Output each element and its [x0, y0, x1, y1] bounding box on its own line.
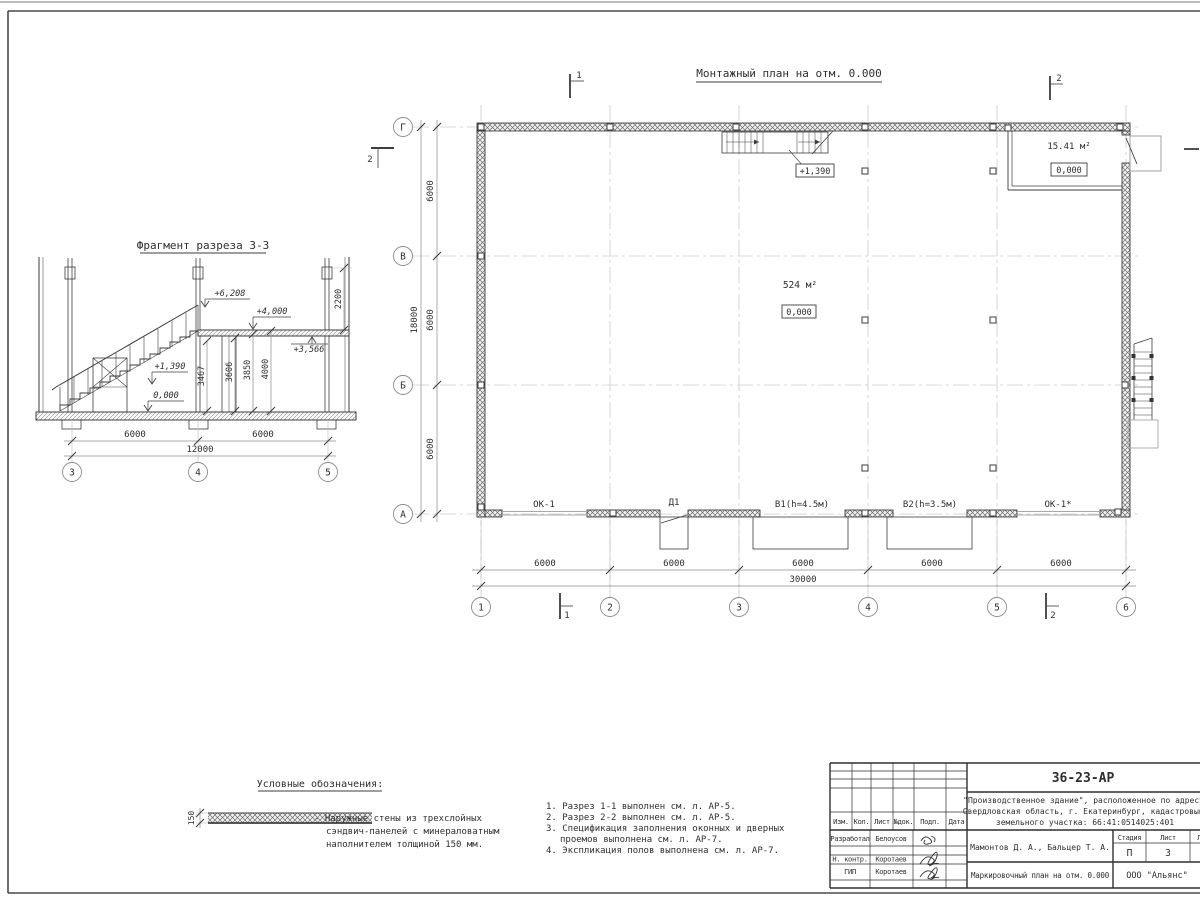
note-line-2: 2. Разрез 2-2 выполнен см. л. АР-5. [546, 813, 736, 823]
notes: 1. Разрез 1-1 выполнен см. л. АР-5. 2. Р… [546, 802, 785, 856]
note-line-4: 4. Экспликация полов выполнена см. л. АР… [546, 846, 779, 856]
axis-bubble-1: 1 [478, 603, 484, 614]
axis-bubble-5: 5 [994, 603, 1000, 614]
axis-bubble-3: 3 [736, 603, 742, 614]
plan: Монтажный план на отм. 0.000 [367, 67, 1199, 621]
col-izm: Изм. [833, 818, 849, 826]
dim-label: 6000 [534, 559, 556, 569]
dim-total-label: 18000 [410, 306, 420, 333]
elev-6208: +6,208 [215, 289, 246, 299]
axis-grid [413, 105, 1140, 597]
dim-label: 6000 [792, 559, 814, 569]
note-line-3: 3. Спецификация заполнения оконных и две… [546, 824, 785, 834]
section-mark-2-left: 2 [367, 155, 372, 165]
dim-total-label: 30000 [789, 575, 816, 585]
project-line-2: Свердловская область, г. Екатеринбург, к… [963, 806, 1200, 816]
elev-1390: +1,390 [155, 362, 186, 372]
section-title: Фрагмент разреза 3-3 [137, 239, 269, 252]
col-data: Дата [949, 818, 965, 826]
axis-bubble-b: Б [400, 381, 406, 392]
vdim-4000: 4000 [261, 359, 271, 379]
elev-3566: +3,566 [294, 345, 325, 355]
sheet-header: Лист [1160, 834, 1176, 842]
dim-label: 6000 [426, 309, 436, 331]
axis-bubble-2: 2 [607, 603, 613, 614]
label-v1: В1(h=4.5м) [775, 500, 829, 510]
col-ndok: №док. [893, 818, 914, 826]
axis-bubble-g: Г [400, 123, 406, 134]
axis-bubble-v: В [400, 252, 406, 263]
axis-bubble-5: 5 [325, 468, 331, 479]
drawing-title: Маркировочный план на отм. 0.000 [971, 871, 1110, 880]
vdim-2200: 2200 [334, 289, 344, 309]
opening-labels: ОК-1 Д1 В1(h=4.5м) В2(h=3.5м) ОК-1* [533, 498, 1071, 510]
note-line-1: 1. Разрез 1-1 выполнен см. л. АР-5. [546, 802, 736, 812]
section-mark-1-bottom: 1 [564, 611, 569, 621]
legend-line-2: сэндвич-панелей с минераловатным [326, 827, 500, 837]
name-developer: Белоусов [875, 835, 906, 843]
dim-label: 6000 [426, 180, 436, 202]
title-block: Изм. Кол. Лист №док. Подп. Дата Разработ… [830, 763, 1200, 888]
project-line-1: "Производственное здание", расположенное… [963, 796, 1200, 805]
legend-dim-150: 150 [187, 811, 196, 826]
role-ncontrol: Н. контр. [832, 856, 867, 864]
label-ok1: ОК-1 [533, 500, 555, 510]
label-ok1-star: ОК-1* [1044, 500, 1071, 510]
stair-level-label: +1,390 [800, 167, 831, 177]
name-gip: Коротаев [875, 868, 906, 876]
legend-title: Условные обозначения: [257, 778, 383, 790]
col-podp: Подп. [920, 818, 940, 826]
role-gip: ГИП [844, 868, 856, 876]
vdim-3606: 3606 [225, 362, 235, 382]
axis-bubble-a: А [400, 510, 406, 521]
plan-left-dims: 6000 6000 6000 18000 Г В Б А [394, 118, 442, 524]
axis-bubble-4: 4 [195, 468, 201, 479]
plan-bottom-dims: 6000 6000 6000 6000 6000 30000 1 2 3 4 5… [472, 520, 1137, 617]
label-v2: В2(h=3.5м) [903, 500, 957, 510]
dim-label: 6000 [124, 430, 146, 440]
note-line-3b: проемов выполнена см. л. АР-7. [560, 835, 723, 845]
dim-label: 12000 [186, 445, 213, 455]
doc-number: 36-23-АР [1052, 771, 1115, 786]
axis-bubble-4: 4 [865, 603, 871, 614]
columns [478, 124, 1128, 516]
org-name: ООО "Альянс" [1126, 871, 1187, 881]
dim-label: 6000 [252, 430, 274, 440]
section-mark-2-top: 2 [1056, 74, 1061, 84]
drawing-sheet: Фрагмент разреза 3-3 [0, 0, 1200, 900]
dim-label: 6000 [426, 438, 436, 460]
authors: Мамонтов Д. А., Бальцер Т. А. [970, 843, 1110, 852]
section-fragment: Фрагмент разреза 3-3 [36, 239, 356, 482]
room-level-label: 0,000 [1056, 166, 1082, 176]
section-flags: 1 2 2 1 2 [367, 71, 1199, 621]
dim-label: 6000 [1050, 559, 1072, 569]
stage-header: Стадия [1118, 834, 1142, 842]
role-developer: Разработал [830, 835, 869, 843]
cad-canvas: Фрагмент разреза 3-3 [0, 0, 1200, 900]
col-kol: Кол. [854, 818, 870, 826]
vdim-3850: 3850 [243, 360, 253, 380]
main-level-label: 0,000 [786, 308, 812, 318]
plan-title: Монтажный план на отм. 0.000 [696, 67, 881, 80]
section-mark-2-bottom: 2 [1050, 611, 1055, 621]
elev-4000: +4,000 [257, 307, 288, 317]
signatures [920, 836, 939, 880]
stage-value: П [1127, 848, 1133, 859]
legend-line-1: - Наружные стены из трехслойных [314, 814, 483, 824]
stair-support-frame [93, 358, 127, 412]
col-list: Лист [874, 818, 890, 826]
dim-label: 6000 [921, 559, 943, 569]
fire-escape-ladder [1128, 338, 1158, 448]
vdim-3467: 3467 [197, 366, 207, 386]
main-area-label: 524 м² [783, 280, 817, 291]
openings [660, 515, 972, 549]
section-mark-1-top: 1 [576, 71, 581, 81]
legend: Условные обозначения: 150 - Наружные сте… [187, 778, 500, 850]
legend-line-3: наполнителем толщиной 150 мм. [326, 840, 483, 850]
sheet-value: 3 [1165, 848, 1171, 859]
dim-label: 6000 [663, 559, 685, 569]
room: 15.41 м² 0,000 [1008, 131, 1161, 190]
room-area-label: 15.41 м² [1047, 142, 1090, 152]
elev-0000: 0,000 [153, 391, 179, 401]
project-line-3: земельного участка: 66:41:0514025:401 [996, 818, 1174, 827]
axis-bubble-3: 3 [69, 468, 75, 479]
axis-bubble-6: 6 [1123, 603, 1129, 614]
walls [477, 123, 1130, 517]
sheet-frame [0, 2, 1200, 893]
label-d1: Д1 [669, 498, 680, 508]
name-ncontrol: Коротаев [875, 856, 906, 864]
